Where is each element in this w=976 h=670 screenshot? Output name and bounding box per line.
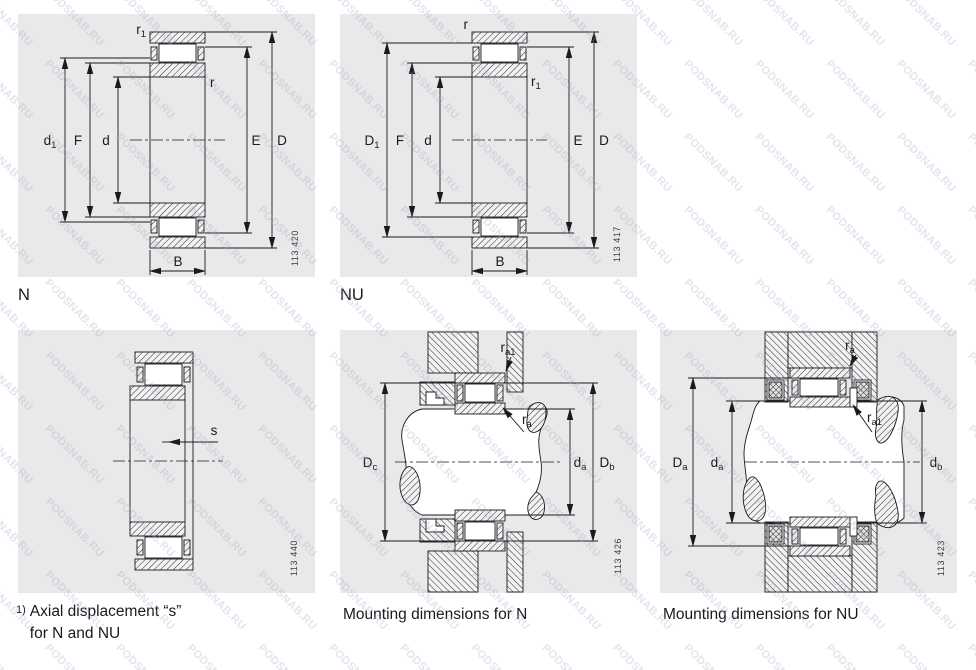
- panel-mounting-nu: Da da db ra ra1 113 423: [660, 330, 957, 593]
- outer-ring-bottom: [790, 546, 850, 556]
- dim-label-r1: r1: [136, 22, 146, 40]
- flange-bottom-right: [184, 540, 190, 555]
- inner-ring-bottom: [455, 510, 505, 521]
- flange-bottom-right: [497, 523, 503, 539]
- watermark-tile: PODSNAB.RU: [753, 204, 817, 268]
- watermark-tile: PODSNAB.RU: [753, 0, 817, 49]
- dim-label-E: E: [573, 133, 582, 148]
- dim-label-B: B: [495, 254, 504, 269]
- watermark-tile: PODSNAB.RU: [682, 131, 746, 195]
- flange-top-left: [792, 380, 798, 395]
- inner-ring-step-top: [850, 388, 857, 407]
- watermark-tile: PODSNAB.RU: [469, 642, 533, 670]
- roller-top: [145, 364, 182, 385]
- roller-top: [465, 384, 495, 402]
- flange-bottom-right: [840, 529, 846, 544]
- panel-figure-axial-displacement: s 113 440: [18, 330, 315, 593]
- caption-n: N: [18, 284, 30, 306]
- watermark-tile: PODSNAB.RU: [824, 204, 888, 268]
- dim-label-D1: D1: [364, 133, 379, 151]
- flange-top-left: [457, 385, 463, 401]
- flange-top-right: [497, 385, 503, 401]
- roller-bottom: [145, 537, 182, 558]
- watermark-tile: PODSNAB.RU: [966, 204, 976, 268]
- dim-label-r: r: [210, 75, 215, 90]
- housing-strip-top: [788, 332, 852, 368]
- roller-top: [159, 44, 196, 62]
- flange-top-right: [198, 47, 204, 60]
- panel-figure-nu: D1 F d E D B r r1 113 417: [340, 14, 637, 277]
- roller-top: [481, 44, 518, 62]
- roller-bottom: [465, 522, 495, 540]
- flange-top-left: [473, 47, 479, 60]
- outer-ring-bottom: [472, 237, 527, 248]
- caption-axial-line1: Axial displacement “s”: [30, 603, 182, 620]
- caption-axial-displacement: 1) Axial displacement “s” for N and NU: [16, 601, 181, 645]
- flange-bottom-left: [137, 540, 143, 555]
- watermark-tile: PODSNAB.RU: [0, 642, 35, 670]
- outer-ring-bottom: [150, 237, 205, 248]
- inner-ring-top: [150, 63, 205, 77]
- dim-label-F: F: [74, 133, 82, 148]
- watermark-tile: PODSNAB.RU: [540, 642, 604, 670]
- watermark-tile: PODSNAB.RU: [824, 642, 888, 670]
- locating-ring-left-top: [769, 382, 782, 398]
- figure-number: 113 417: [612, 226, 622, 262]
- watermark-tile: PODSNAB.RU: [966, 277, 976, 341]
- inner-ring-top: [472, 63, 527, 77]
- bearing-nu: [452, 32, 547, 248]
- locating-ring-left-bottom: [769, 526, 782, 542]
- locating-ring-right-bottom: [856, 526, 869, 542]
- catalog-page: d1 F d E D B r1 r 113 420: [0, 0, 976, 670]
- watermark-tile: PODSNAB.RU: [682, 204, 746, 268]
- outer-ring-top: [150, 32, 205, 43]
- roller-top: [800, 379, 838, 396]
- watermark-tile: PODSNAB.RU: [895, 131, 959, 195]
- flange-bottom-right: [520, 220, 526, 233]
- dim-label-D: D: [277, 133, 287, 148]
- inner-ring-top: [790, 397, 850, 407]
- outer-ring-top: [790, 368, 850, 378]
- watermark-tile: PODSNAB.RU: [824, 0, 888, 49]
- footnote-marker: 1): [16, 599, 26, 621]
- watermark-tile: PODSNAB.RU: [895, 642, 959, 670]
- flange-bottom-left: [457, 523, 463, 539]
- bearing-axial-displacement: s 113 440: [18, 330, 315, 593]
- mounting-drawing-nu: Da da db ra ra1 113 423: [660, 330, 957, 593]
- watermark-tile: PODSNAB.RU: [966, 423, 976, 487]
- panel-mounting-n: Dc da Db ra1 ra 113 426: [340, 330, 637, 593]
- watermark-tile: PODSNAB.RU: [824, 131, 888, 195]
- flange-bottom-left: [473, 220, 479, 233]
- dim-label-r: r: [464, 17, 469, 32]
- figure-number: 113 423: [936, 540, 946, 576]
- figure-number: 113 440: [289, 540, 299, 576]
- inner-ring-bottom: [790, 517, 850, 527]
- outer-ring-bottom: [135, 559, 193, 570]
- flange-bottom-left: [792, 529, 798, 544]
- flange-top-right: [520, 47, 526, 60]
- watermark-tile: PODSNAB.RU: [966, 350, 976, 414]
- locating-ring-right-top: [856, 382, 869, 398]
- housing-block-bottom: [428, 551, 478, 592]
- bearing-shifted: [113, 352, 223, 570]
- caption-nu: NU: [340, 284, 364, 306]
- dim-label-B: B: [173, 254, 182, 269]
- dim-label-da: da: [574, 455, 588, 473]
- watermark-tile: PODSNAB.RU: [185, 642, 249, 670]
- dim-label-Db: Db: [599, 455, 614, 473]
- caption-axial-line2: for N and NU: [30, 625, 120, 642]
- bearing-cross-section-n: d1 F d E D B r1 r 113 420: [18, 14, 315, 277]
- watermark-tile: PODSNAB.RU: [966, 0, 976, 49]
- watermark-tile: PODSNAB.RU: [966, 496, 976, 560]
- watermark-tile: PODSNAB.RU: [824, 58, 888, 122]
- dim-label-F: F: [396, 133, 404, 148]
- figure-number: 113 420: [290, 230, 300, 266]
- watermark-tile: PODSNAB.RU: [611, 642, 675, 670]
- caption-mounting-nu: Mounting dimensions for NU: [663, 604, 859, 626]
- flange-top-left: [137, 367, 143, 382]
- outer-ring-top: [455, 373, 505, 383]
- watermark-tile: PODSNAB.RU: [966, 642, 976, 670]
- dim-label-d1: d1: [44, 133, 57, 151]
- flange-bottom-left: [151, 220, 157, 233]
- inner-ring-top: [455, 403, 505, 414]
- roller-bottom: [800, 528, 838, 545]
- watermark-tile: PODSNAB.RU: [327, 642, 391, 670]
- dim-label-db: db: [930, 455, 943, 473]
- watermark-tile: PODSNAB.RU: [753, 642, 817, 670]
- watermark-tile: PODSNAB.RU: [398, 642, 462, 670]
- dim-label-d: d: [102, 133, 110, 148]
- flange-top-right: [840, 380, 846, 395]
- watermark-tile: PODSNAB.RU: [114, 642, 178, 670]
- flange-bottom-right: [198, 220, 204, 233]
- watermark-tile: PODSNAB.RU: [895, 0, 959, 49]
- dim-label-D: D: [599, 133, 609, 148]
- figure-number: 113 426: [613, 538, 623, 574]
- outer-ring-top: [472, 32, 527, 43]
- bearing-cross-section-nu: D1 F d E D B r r1 113 417: [340, 14, 637, 277]
- mounting-drawing-n: Dc da Db ra1 ra 113 426: [340, 330, 637, 593]
- watermark-tile: PODSNAB.RU: [753, 58, 817, 122]
- inner-ring-top: [130, 386, 185, 400]
- watermark-tile: PODSNAB.RU: [682, 0, 746, 49]
- dim-label-da: da: [711, 455, 725, 473]
- outer-ring-top: [135, 352, 193, 363]
- dim-label-E: E: [251, 133, 260, 148]
- watermark-tile: PODSNAB.RU: [43, 642, 107, 670]
- watermark-tile: PODSNAB.RU: [966, 58, 976, 122]
- dim-label-Dc: Dc: [363, 455, 378, 473]
- dim-label-d: d: [424, 133, 432, 148]
- watermark-tile: PODSNAB.RU: [682, 58, 746, 122]
- inner-ring-bottom: [472, 203, 527, 217]
- dim-label-r1: r1: [531, 74, 541, 92]
- watermark-tile: PODSNAB.RU: [895, 58, 959, 122]
- watermark-tile: PODSNAB.RU: [682, 642, 746, 670]
- watermark-tile: PODSNAB.RU: [895, 204, 959, 268]
- roller-bottom: [481, 218, 518, 236]
- watermark-tile: PODSNAB.RU: [966, 131, 976, 195]
- bearing-n: [130, 32, 225, 248]
- dim-label-s: s: [211, 423, 218, 438]
- watermark-tile: PODSNAB.RU: [256, 642, 320, 670]
- outer-ring-bottom: [455, 541, 505, 551]
- housing-strip-bottom: [788, 556, 852, 592]
- watermark-tile: PODSNAB.RU: [753, 131, 817, 195]
- panel-figure-n: d1 F d E D B r1 r 113 420: [18, 14, 315, 277]
- housing-block-top: [428, 332, 478, 373]
- inner-ring-bottom: [130, 522, 185, 536]
- flange-top-right: [184, 367, 190, 382]
- inner-ring-step-bottom: [850, 517, 857, 536]
- roller-bottom: [159, 218, 196, 236]
- watermark-tile: PODSNAB.RU: [966, 569, 976, 633]
- caption-mounting-n: Mounting dimensions for N: [343, 604, 527, 626]
- inner-ring-bottom: [150, 203, 205, 217]
- dim-label-Da: Da: [672, 455, 688, 473]
- flange-top-left: [151, 47, 157, 60]
